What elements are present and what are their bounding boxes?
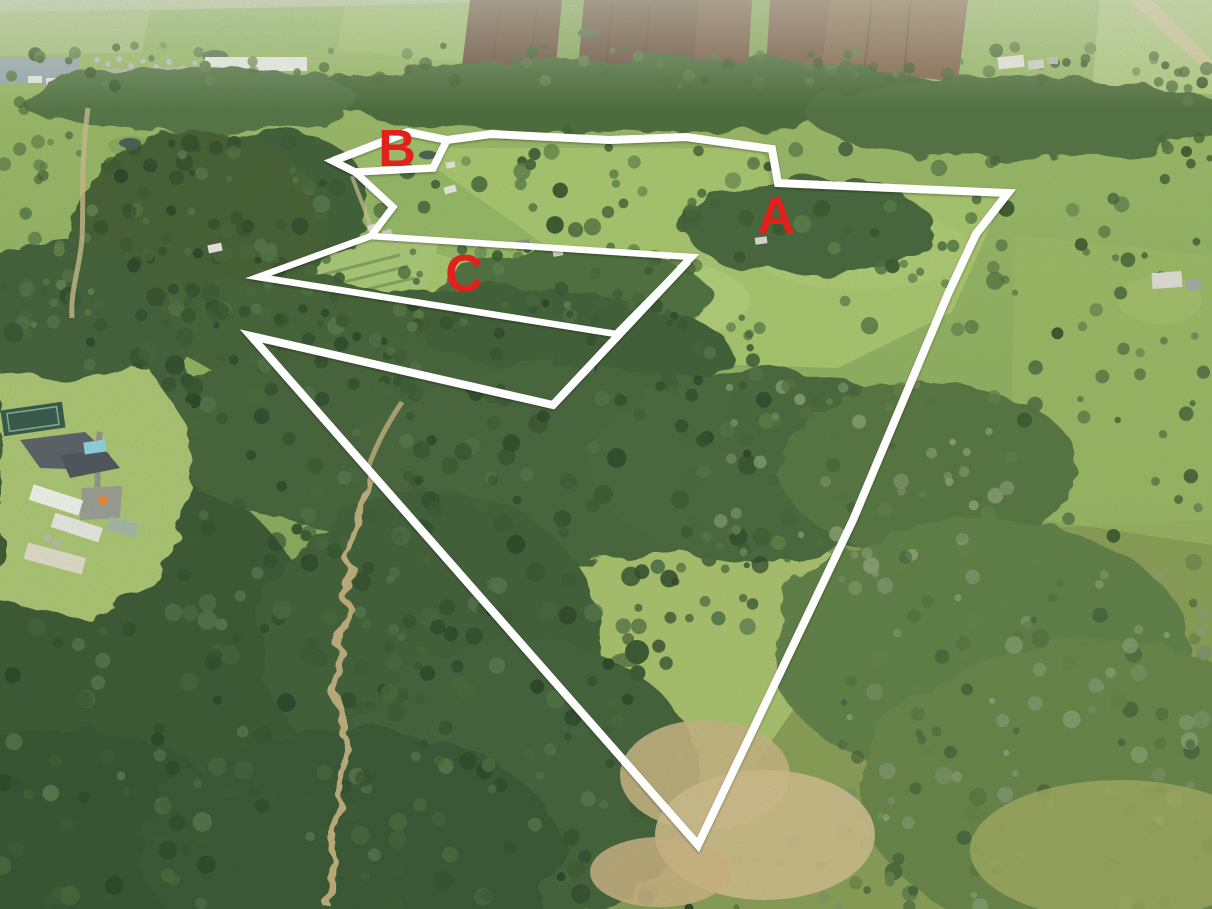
aerial-photo-canvas: A B C xyxy=(0,0,1212,909)
lot-label-b: B xyxy=(378,120,416,178)
lot-label-c: C xyxy=(445,245,483,303)
lot-label-a: A xyxy=(757,187,795,245)
aerial-photo: A B C xyxy=(0,0,1212,909)
